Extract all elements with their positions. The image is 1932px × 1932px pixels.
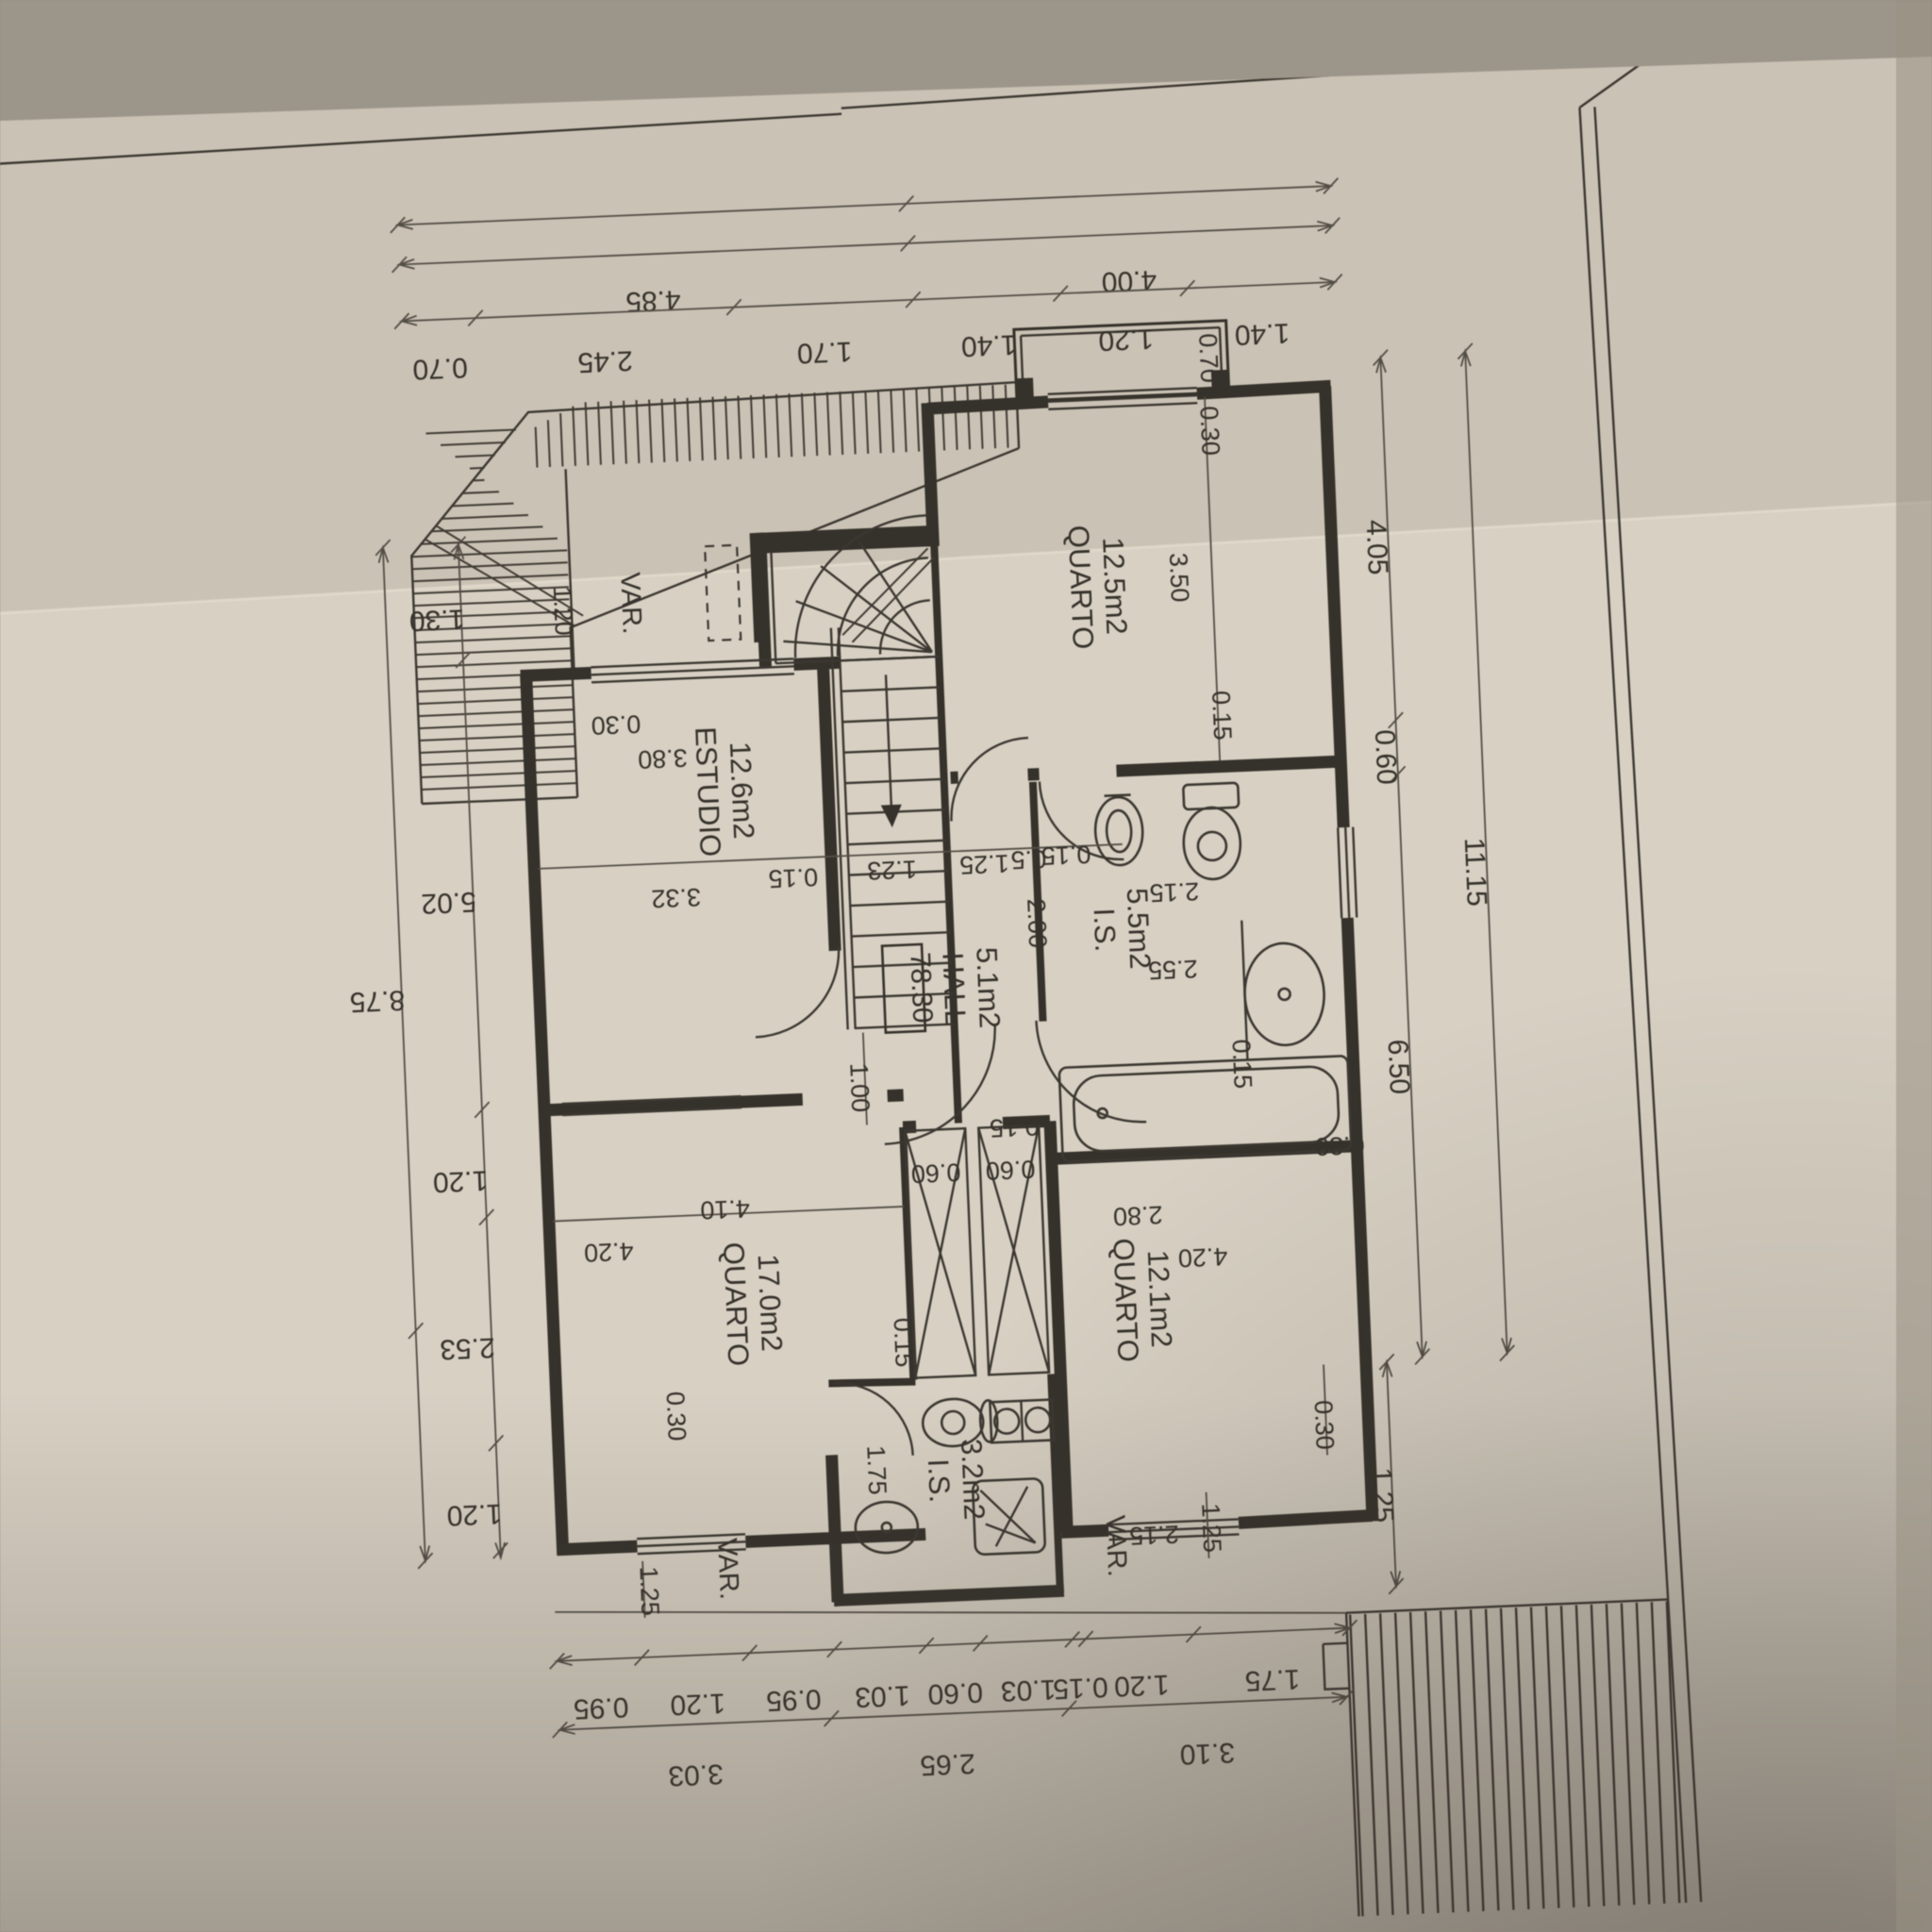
background-right-strip [1896, 0, 1932, 1932]
photographed-floor-plan: 4.854.000.702.451.701.401.201.408.751.30… [0, 0, 1932, 1932]
corner-shadow [0, 0, 1932, 1932]
floor-plan-drawing: 4.854.000.702.451.701.401.201.408.751.30… [0, 0, 1932, 1932]
